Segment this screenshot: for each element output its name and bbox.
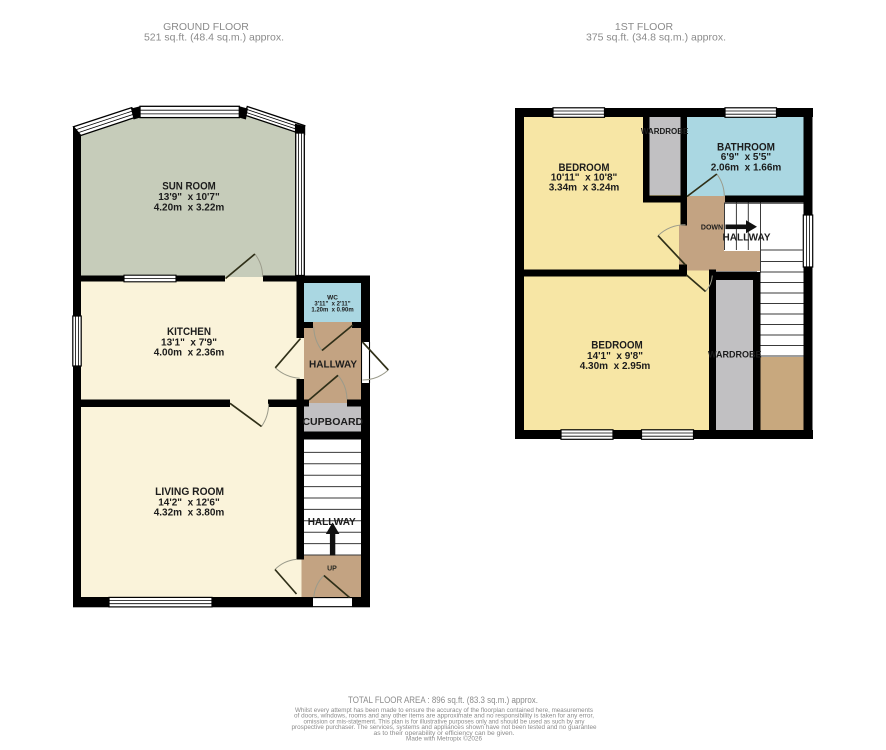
svg-text:TOTAL FLOOR AREA : 896 sq.ft.: TOTAL FLOOR AREA : 896 sq.ft. (83.3 sq.m… (348, 695, 538, 705)
svg-text:DOWN: DOWN (701, 225, 723, 232)
svg-text:Made with Metropix ©2026: Made with Metropix ©2026 (406, 736, 483, 743)
svg-text:CUPBOARD: CUPBOARD (302, 416, 363, 428)
svg-text:KITCHEN: KITCHEN (167, 326, 211, 338)
svg-text:4.20m x 3.22m: 4.20m x 3.22m (154, 202, 225, 213)
svg-text:4.00m x 2.36m: 4.00m x 2.36m (154, 348, 225, 359)
svg-text:WARDROBE: WARDROBE (641, 127, 689, 136)
svg-text:WC: WC (327, 295, 338, 302)
svg-text:2.06m x 1.66m: 2.06m x 1.66m (711, 162, 782, 173)
svg-text:LIVING ROOM: LIVING ROOM (155, 486, 224, 498)
svg-text:UP: UP (327, 566, 337, 573)
svg-text:375 sq.ft. (34.8 sq.m.) approx: 375 sq.ft. (34.8 sq.m.) approx. (586, 32, 726, 44)
svg-text:4.32m x 3.80m: 4.32m x 3.80m (154, 508, 225, 519)
svg-text:1.20m x 0.90m: 1.20m x 0.90m (311, 308, 353, 314)
svg-text:WARDROBE: WARDROBE (708, 350, 762, 360)
svg-text:HALLWAY: HALLWAY (309, 360, 357, 371)
svg-text:HALLWAY: HALLWAY (723, 232, 771, 243)
svg-text:BEDROOM: BEDROOM (591, 339, 643, 351)
svg-text:HALLWAY: HALLWAY (308, 517, 356, 528)
svg-text:4.30m x 2.95m: 4.30m x 2.95m (580, 361, 651, 372)
svg-text:521 sq.ft. (48.4 sq.m.) approx: 521 sq.ft. (48.4 sq.m.) approx. (144, 32, 284, 44)
svg-text:SUN ROOM: SUN ROOM (162, 181, 216, 193)
svg-text:3.34m x 3.24m: 3.34m x 3.24m (549, 183, 620, 194)
